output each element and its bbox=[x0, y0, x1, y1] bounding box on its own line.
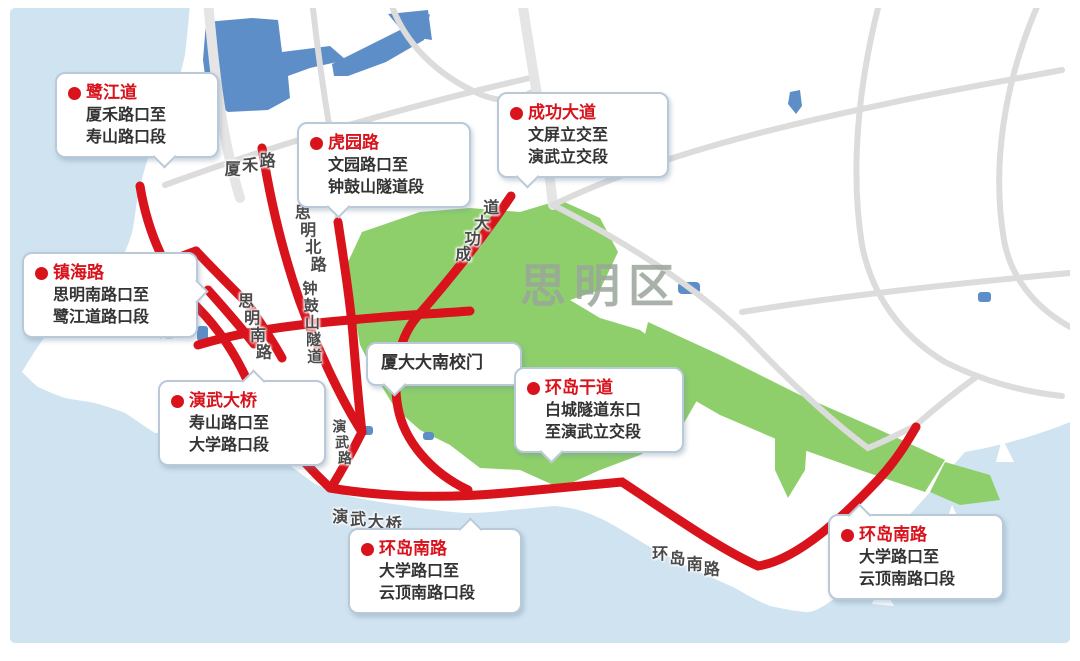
callout-厦大大南校门: 厦大大南校门 bbox=[366, 342, 522, 386]
callout-segment-text: 演武立交段 bbox=[510, 146, 656, 168]
callout-road-name: 镇海路 bbox=[53, 262, 104, 284]
callout-segment-text: 文屏立交至 bbox=[510, 124, 656, 146]
callout-segment-text: 云顶南路口段 bbox=[841, 568, 991, 590]
callout-鹭江道: 鹭江道厦禾路口至寿山路口段 bbox=[55, 72, 219, 158]
callout-segment-text: 厦大大南校门 bbox=[379, 352, 509, 375]
bullet-dot-icon bbox=[510, 107, 523, 120]
callout-road-name: 虎园路 bbox=[328, 132, 379, 154]
callout-title: 虎园路 bbox=[310, 132, 458, 154]
bullet-dot-icon bbox=[841, 529, 854, 542]
callout-segment-text: 寿山路口段 bbox=[68, 126, 206, 148]
callout-road-name: 环岛南路 bbox=[859, 524, 927, 546]
callout-title: 镇海路 bbox=[35, 262, 185, 284]
callout-环岛南路: 环岛南路大学路口至云顶南路口段 bbox=[828, 514, 1004, 600]
callout-成功大道: 成功大道文屏立交至演武立交段 bbox=[497, 92, 669, 178]
callout-road-name: 环岛南路 bbox=[379, 538, 447, 560]
callout-segment-text: 厦禾路口至 bbox=[68, 104, 206, 126]
callout-tail bbox=[383, 372, 407, 396]
callout-虎园路: 虎园路文园路口至钟鼓山隧道段 bbox=[297, 122, 471, 208]
bullet-dot-icon bbox=[171, 395, 184, 408]
callout-title: 环岛南路 bbox=[841, 524, 991, 546]
callout-环岛南路: 环岛南路大学路口至云顶南路口段 bbox=[348, 528, 522, 614]
callout-segment-text: 钟鼓山隧道段 bbox=[310, 176, 458, 198]
callout-tail bbox=[153, 145, 177, 169]
callout-segment-text: 云顶南路口段 bbox=[361, 582, 509, 604]
callout-镇海路: 镇海路思明南路口至鹭江道路口段 bbox=[22, 252, 198, 338]
callout-road-name: 成功大道 bbox=[528, 102, 596, 124]
callout-segment-text: 白城隧道东口 bbox=[527, 399, 671, 421]
callout-title: 环岛南路 bbox=[361, 538, 509, 560]
bullet-dot-icon bbox=[35, 267, 48, 280]
callout-tail bbox=[516, 165, 540, 189]
callout-layer: 鹭江道厦禾路口至寿山路口段虎园路文园路口至钟鼓山隧道段成功大道文屏立交至演武立交… bbox=[10, 8, 1070, 643]
callout-title: 成功大道 bbox=[510, 102, 656, 124]
callout-road-name: 演武大桥 bbox=[189, 390, 257, 412]
callout-segment-text: 大学路口至 bbox=[361, 560, 509, 582]
callout-title: 鹭江道 bbox=[68, 82, 206, 104]
callout-road-name: 鹭江道 bbox=[86, 82, 137, 104]
bullet-dot-icon bbox=[527, 382, 540, 395]
infographic-frame: 厦禾路思明北路思明南路鹭江道钟鼓山隧道成功大道演武路演武大桥环岛南路思明区 鹭江… bbox=[0, 0, 1080, 661]
callout-segment-text: 大学路口至 bbox=[841, 546, 991, 568]
callout-环岛干道: 环岛干道白城隧道东口至演武立交段 bbox=[514, 367, 684, 453]
callout-title: 演武大桥 bbox=[171, 390, 313, 412]
callout-segment-text: 鹭江道路口段 bbox=[35, 306, 185, 328]
callout-segment-text: 思明南路口至 bbox=[35, 284, 185, 306]
callout-tail bbox=[326, 195, 350, 219]
callout-title: 环岛干道 bbox=[527, 377, 671, 399]
callout-tail bbox=[184, 279, 208, 303]
callout-road-name: 环岛干道 bbox=[545, 377, 613, 399]
callout-segment-text: 大学路口段 bbox=[171, 434, 313, 456]
map-canvas: 厦禾路思明北路思明南路鹭江道钟鼓山隧道成功大道演武路演武大桥环岛南路思明区 鹭江… bbox=[10, 8, 1070, 643]
callout-segment-text: 至演武立交段 bbox=[527, 421, 671, 443]
callout-segment-text: 文园路口至 bbox=[310, 154, 458, 176]
bullet-dot-icon bbox=[68, 87, 81, 100]
bullet-dot-icon bbox=[310, 137, 323, 150]
callout-tail bbox=[539, 440, 563, 464]
bullet-dot-icon bbox=[361, 543, 374, 556]
callout-演武大桥: 演武大桥寿山路口至大学路口段 bbox=[158, 380, 326, 466]
callout-segment-text: 寿山路口至 bbox=[171, 412, 313, 434]
